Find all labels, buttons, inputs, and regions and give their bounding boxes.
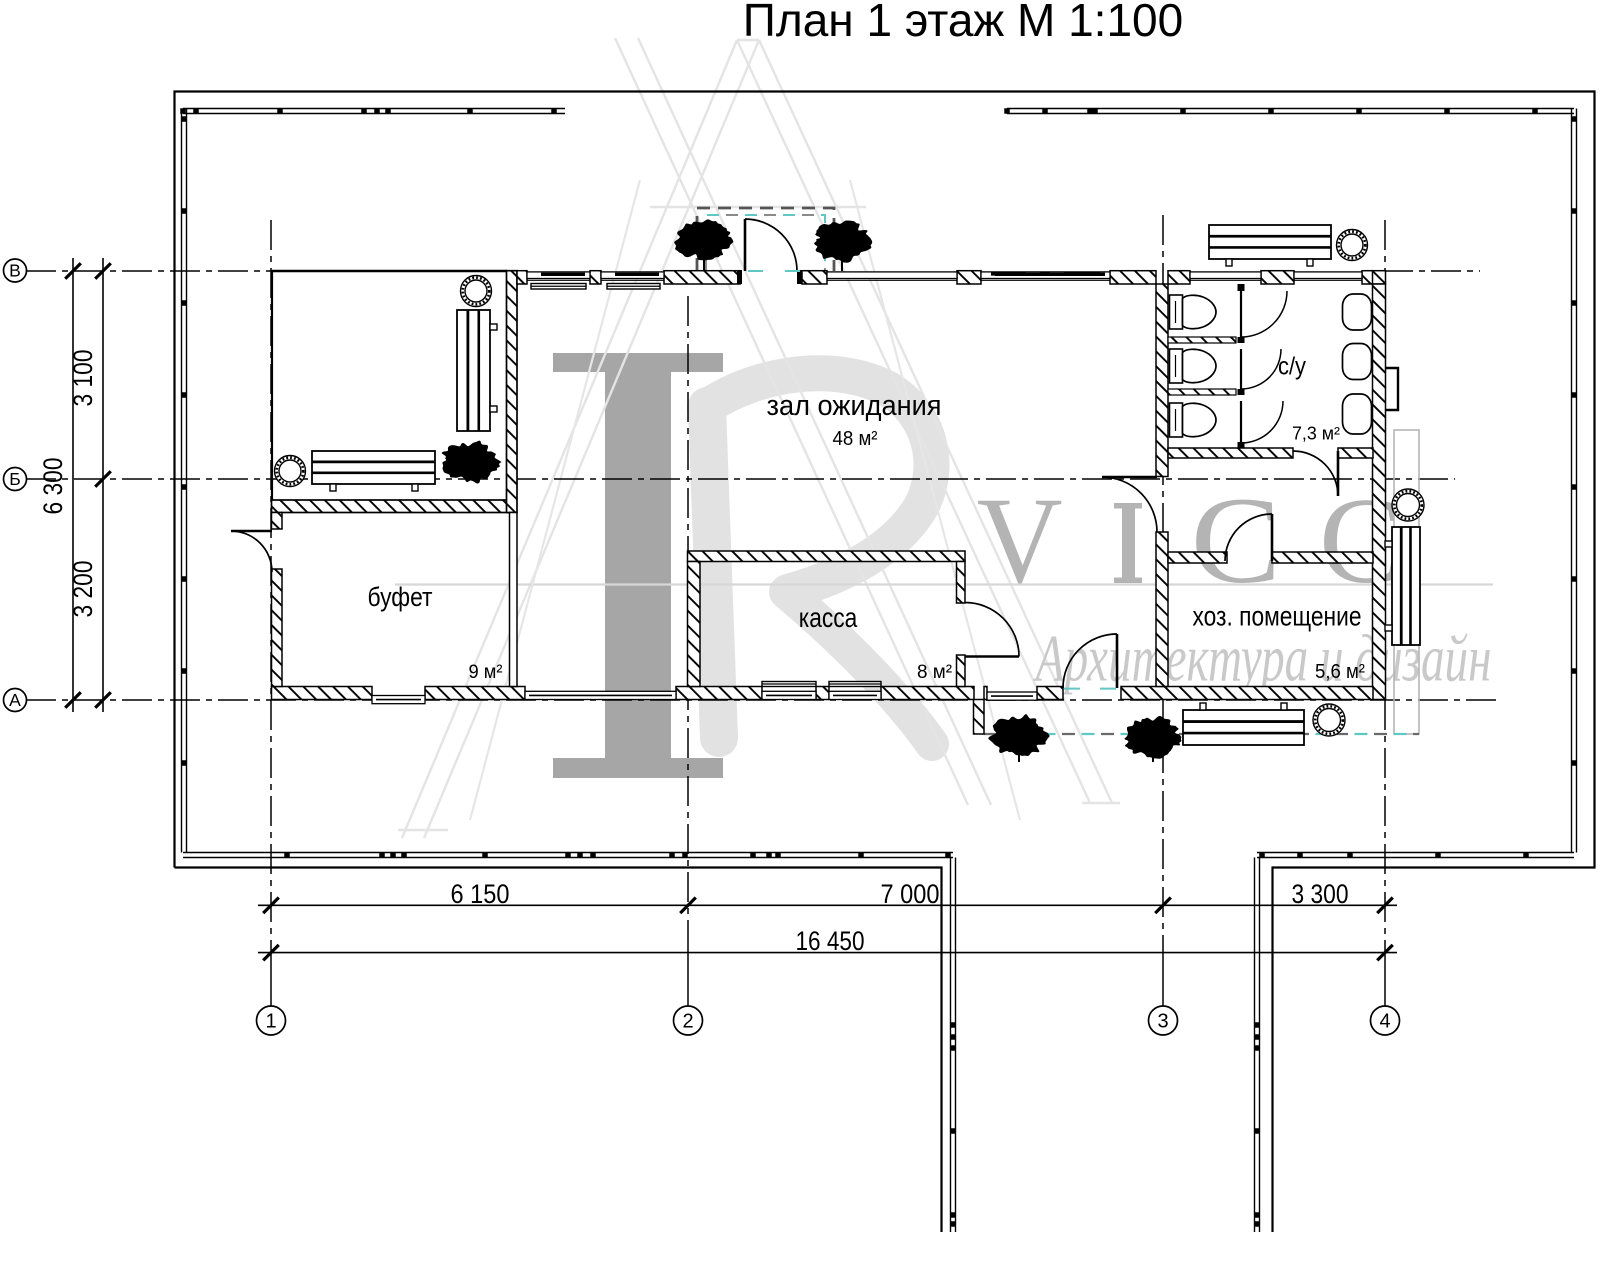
svg-text:План 1 этаж М 1:100: План 1 этаж М 1:100 bbox=[743, 0, 1183, 46]
svg-text:зал ожидания: зал ожидания bbox=[767, 390, 942, 422]
svg-text:3: 3 bbox=[1157, 1011, 1168, 1033]
svg-text:9 м²: 9 м² bbox=[469, 661, 503, 683]
svg-text:16 450: 16 450 bbox=[796, 926, 865, 956]
svg-text:А: А bbox=[9, 690, 21, 710]
svg-text:буфет: буфет bbox=[368, 582, 433, 612]
svg-text:с/у: с/у bbox=[1278, 353, 1306, 381]
svg-text:7,3 м²: 7,3 м² bbox=[1292, 424, 1340, 444]
svg-text:хоз. помещение: хоз. помещение bbox=[1193, 601, 1362, 632]
svg-text:48 м²: 48 м² bbox=[833, 428, 878, 450]
svg-text:6 150: 6 150 bbox=[451, 879, 510, 909]
svg-text:8 м²: 8 м² bbox=[917, 661, 952, 683]
svg-text:C: C bbox=[1191, 472, 1282, 609]
svg-text:2: 2 bbox=[682, 1011, 693, 1033]
svg-text:4: 4 bbox=[1379, 1011, 1390, 1033]
svg-text:V: V bbox=[977, 472, 1063, 609]
svg-text:3 300: 3 300 bbox=[1292, 879, 1349, 909]
svg-text:касса: касса bbox=[799, 602, 858, 633]
svg-text:1: 1 bbox=[265, 1011, 276, 1033]
svg-text:5,6 м²: 5,6 м² bbox=[1315, 661, 1365, 683]
svg-text:7 000: 7 000 bbox=[881, 879, 940, 909]
svg-text:3 100: 3 100 bbox=[68, 350, 98, 407]
svg-text:Б: Б bbox=[9, 469, 20, 489]
svg-text:В: В bbox=[9, 261, 21, 281]
svg-text:3 200: 3 200 bbox=[68, 561, 98, 618]
svg-text:6 300: 6 300 bbox=[38, 458, 68, 515]
svg-text:Архитектура и дизайн: Архитектура и дизайн bbox=[1033, 620, 1492, 695]
